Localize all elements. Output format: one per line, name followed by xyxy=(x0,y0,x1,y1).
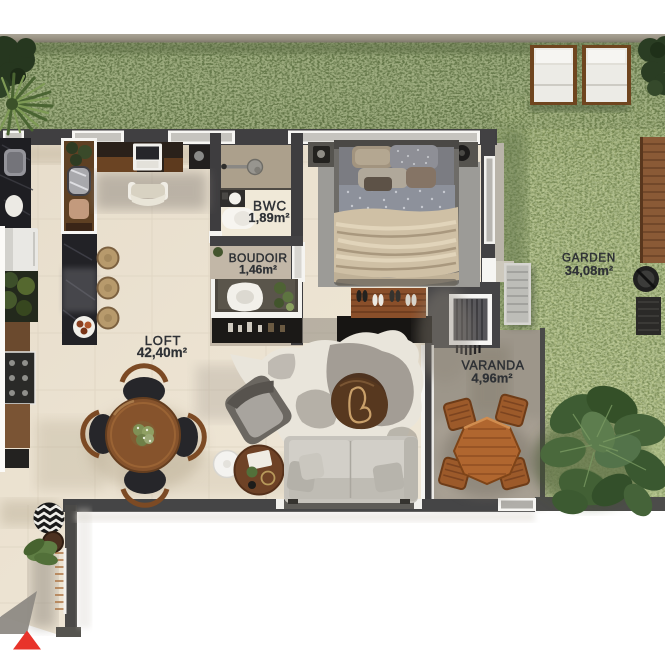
svg-text:42,40m²: 42,40m² xyxy=(137,345,188,360)
svg-text:34,08m²: 34,08m² xyxy=(565,263,614,278)
svg-text:1,89m²: 1,89m² xyxy=(248,210,290,225)
svg-text:4,96m²: 4,96m² xyxy=(471,371,513,386)
svg-text:1,46m²: 1,46m² xyxy=(239,263,277,277)
